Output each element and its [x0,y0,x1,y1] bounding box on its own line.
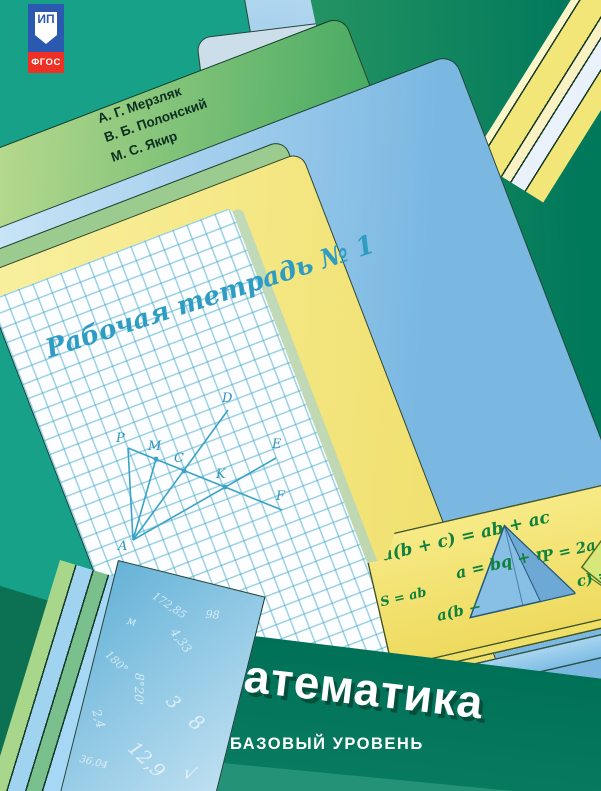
blue-panel-formula: 172,85 [150,589,189,621]
geometry-dot [182,469,187,474]
blue-panel-formula: 8 [184,709,209,736]
tab-formula: a(b − [435,597,483,625]
geometry-point-label: D [221,391,233,406]
geometry-point-label: A [117,539,127,554]
book-icon: ИП [35,12,57,44]
fgos-badge: ФГОС [28,52,64,73]
publisher-logo: ИП [28,4,64,52]
geometry-point-label: C [174,451,184,466]
blue-panel-formula: 36,04 [78,754,108,772]
blue-panel-formula: 180° [102,648,130,676]
badge-text: ФГОС [31,57,61,68]
blue-panel-formula: м [125,613,138,629]
geometry-dot [223,485,228,490]
geometry-point-label: K [215,467,227,482]
blue-panel-formula: 3 [161,691,184,713]
geometry-point-label: F [275,489,286,504]
tab-formula: S = ab [379,585,428,610]
blue-panel-formula: 12,9 [123,737,169,782]
blue-panel-formula: √ [180,762,199,786]
level-label: БАЗОВЫЙ УРОВЕНЬ [230,735,424,754]
blue-panel-formula: 2,4 [89,708,108,730]
geometry-line [133,410,228,540]
geometry-point-label: E [271,437,282,452]
geometry-dot [154,457,159,462]
imprint-text: ИП [37,12,54,26]
blue-panel-formula: 8°20' [131,673,146,706]
geometry-line [133,459,156,540]
geometry-figure: APMCKDEF [88,388,298,568]
blue-panel-formula: 98 [205,608,220,622]
book-cover: m∠MON396 м³2,395О⅓24089767,850,3452,4599… [0,0,601,791]
geometry-point-label: M [147,439,162,454]
geometry-line [128,448,133,540]
geometry-point-label: P [115,431,125,446]
blue-panel-formula: 4,33 [168,626,195,656]
